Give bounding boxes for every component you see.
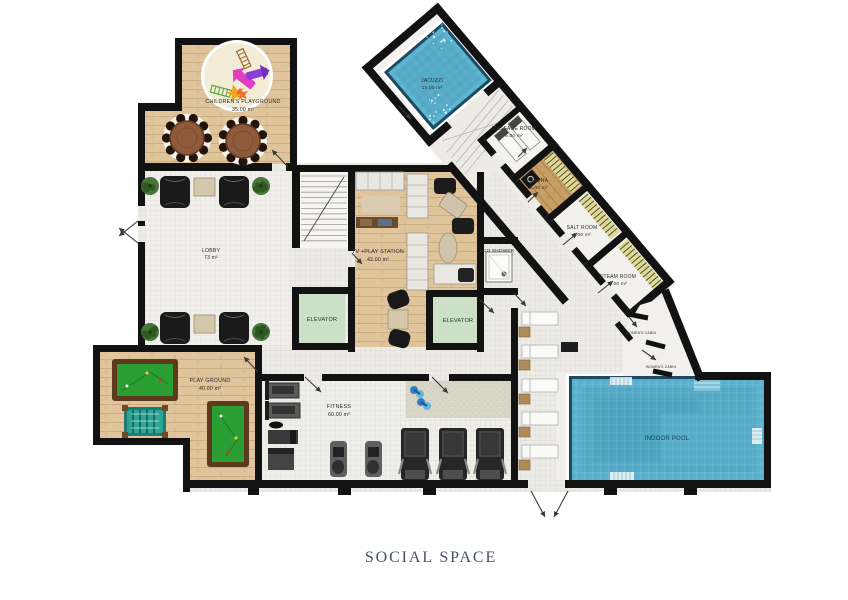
svg-text:73 m²: 73 m² — [204, 255, 218, 261]
svg-text:6.00 m²: 6.00 m² — [530, 185, 548, 191]
svg-text:15.00 m²: 15.00 m² — [422, 85, 443, 91]
svg-text:SALT ROOM: SALT ROOM — [567, 225, 598, 231]
svg-text:CHILDREN'S PLAYGROUND: CHILDREN'S PLAYGROUND — [205, 99, 280, 105]
svg-text:INDOOR POOL: INDOOR POOL — [645, 436, 690, 442]
svg-text:WOMEN'S CABIN: WOMEN'S CABIN — [626, 331, 657, 335]
svg-text:SAUNA: SAUNA — [530, 178, 549, 184]
svg-text:6.00 m²: 6.00 m² — [609, 281, 627, 287]
svg-text:ECO SHOWER: ECO SHOWER — [480, 248, 515, 253]
svg-text:STEAM ROOM: STEAM ROOM — [600, 274, 636, 280]
svg-text:40.00 m²: 40.00 m² — [199, 386, 221, 392]
svg-text:LOBBY: LOBBY — [202, 248, 221, 254]
svg-text:WOMEN'S CABIN: WOMEN'S CABIN — [646, 365, 677, 369]
svg-text:TV +PLAY STATION: TV +PLAY STATION — [352, 249, 404, 255]
svg-text:35.00 m²: 35.00 m² — [232, 107, 254, 113]
svg-text:6.00 m²: 6.00 m² — [573, 232, 591, 238]
svg-text:SOCIAL SPACE: SOCIAL SPACE — [365, 549, 497, 566]
svg-text:ELEVATOR: ELEVATOR — [443, 318, 474, 324]
svg-text:6.00 m²: 6.00 m² — [505, 133, 523, 139]
svg-text:FITNESS: FITNESS — [327, 404, 351, 410]
svg-text:PLAY GROUND: PLAY GROUND — [190, 378, 231, 384]
svg-text:42.00 m²: 42.00 m² — [367, 257, 389, 263]
svg-text:60.00 m²: 60.00 m² — [328, 412, 350, 418]
svg-text:ELEVATOR: ELEVATOR — [307, 317, 338, 323]
svg-text:JACUZZI: JACUZZI — [421, 78, 443, 84]
svg-text:MASSAGE ROOM: MASSAGE ROOM — [492, 126, 536, 132]
